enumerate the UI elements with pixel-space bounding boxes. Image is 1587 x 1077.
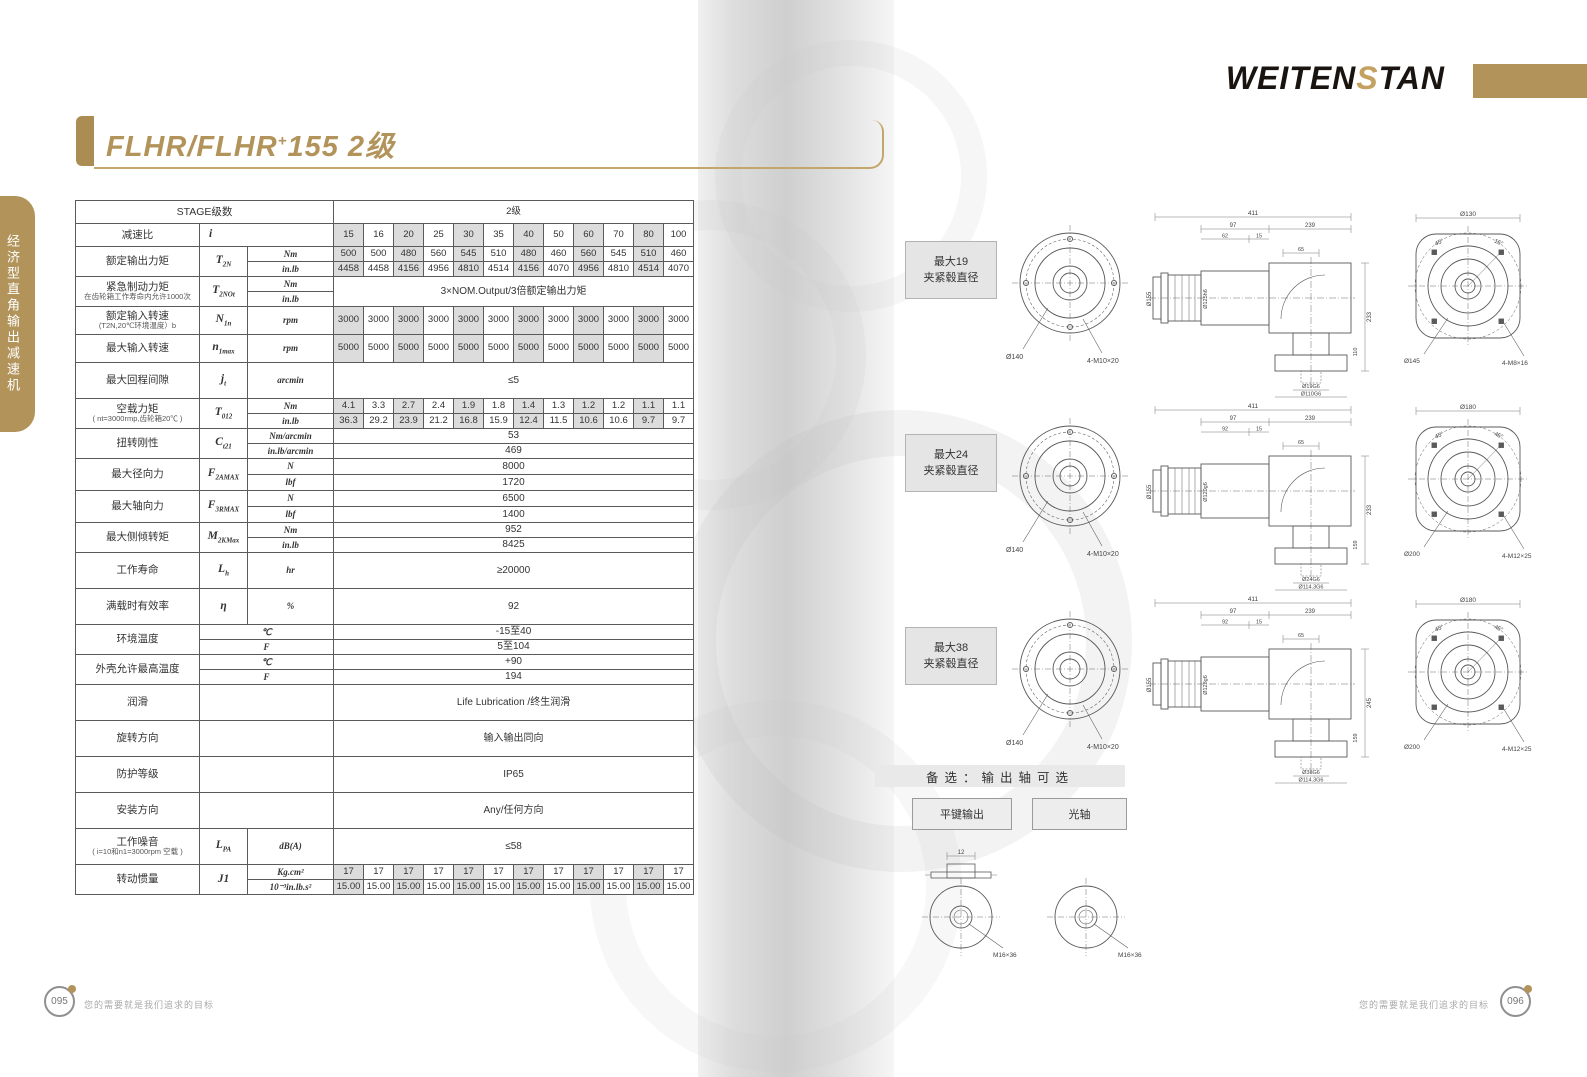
row-unit: Kg.cm²: [248, 865, 334, 880]
svg-text:Ø145: Ø145: [1404, 358, 1420, 365]
svg-text:45°: 45°: [1493, 431, 1504, 441]
row-unit: N: [248, 459, 334, 475]
row-unit: in.lb: [248, 292, 334, 307]
svg-text:Ø19G6: Ø19G6: [1302, 384, 1320, 390]
drawing-row: 最大19夹紧毂直径 Ø140 4-M10×20 411 97 239 62 15…: [900, 205, 1570, 395]
value-span: 6500: [334, 491, 694, 507]
value-cell: 4810: [454, 262, 484, 277]
svg-text:4-M12×25: 4-M12×25: [1502, 746, 1532, 753]
value-cell: 3000: [634, 307, 664, 335]
value-cell: 1.1: [664, 399, 694, 414]
row-unit: in.lb: [248, 262, 334, 277]
value-cell: 3000: [484, 307, 514, 335]
svg-text:4-M12×25: 4-M12×25: [1502, 553, 1532, 560]
side-view-drawing: 411 97 239 62 15 65 Ø155 Ø125h6 233 110 …: [1143, 205, 1383, 405]
value-cell: 545: [604, 247, 634, 262]
ratio-value: 20: [394, 224, 424, 247]
value-cell: 5000: [514, 335, 544, 363]
value-cell: 9.7: [634, 414, 664, 429]
value-cell: 15.00: [424, 880, 454, 895]
flange-view-drawing: Ø180 45° 45° Ø200 4-M12×25: [1388, 401, 1548, 584]
value-cell: 4156: [394, 262, 424, 277]
value-cell: 5000: [574, 335, 604, 363]
row-symbol: F2AMAX: [200, 459, 248, 491]
row-unit: hr: [248, 553, 334, 589]
svg-text:Ø114.3G6: Ø114.3G6: [1299, 778, 1324, 784]
value-cell: 9.7: [664, 414, 694, 429]
row-label: 转动惯量: [76, 865, 200, 895]
value-cell: 21.2: [424, 414, 454, 429]
svg-text:159: 159: [1353, 540, 1359, 549]
row-label: 满载时有效率: [76, 589, 200, 625]
flange-view-drawing: Ø180 45° 45° Ø200 4-M12×25: [1388, 594, 1548, 777]
value-span: -15至40: [334, 625, 694, 640]
option-keyed-output: 平键输出: [912, 798, 1012, 830]
clamp-spec-box: 最大38夹紧毂直径: [905, 627, 997, 685]
value-cell: 1.2: [574, 399, 604, 414]
svg-text:Ø200: Ø200: [1404, 744, 1420, 751]
value-cell: 480: [514, 247, 544, 262]
value-cell: 17: [634, 865, 664, 880]
ratio-value: 16: [364, 224, 394, 247]
svg-text:Ø180: Ø180: [1460, 404, 1476, 411]
value-span: ≥20000: [334, 553, 694, 589]
value-cell: 560: [574, 247, 604, 262]
value-cell: 15.00: [394, 880, 424, 895]
value-cell: 5000: [364, 335, 394, 363]
svg-text:15: 15: [1256, 234, 1262, 240]
row-symbol: T012: [200, 399, 248, 429]
svg-text:Ø180: Ø180: [1460, 597, 1476, 604]
row-symbol: Ct21: [200, 429, 248, 459]
footer-slogan-left: 您的需要就是我们追求的目标: [84, 998, 214, 1011]
front-view-drawing: Ø140 4-M10×20: [1003, 406, 1138, 581]
svg-text:M16×36: M16×36: [993, 952, 1017, 959]
row-label: 额定输入转速(T2N,20℃环境温度）b: [76, 307, 200, 335]
stage-value: 2级: [334, 201, 694, 224]
value-cell: 17: [454, 865, 484, 880]
row-unit: 10⁻³in.lb.s²: [248, 880, 334, 895]
svg-text:12: 12: [958, 850, 965, 856]
svg-text:65: 65: [1298, 633, 1304, 639]
svg-text:92: 92: [1222, 427, 1228, 433]
value-span: 1400: [334, 507, 694, 523]
value-cell: 17: [364, 865, 394, 880]
row-label: 最大轴向力: [76, 491, 200, 523]
svg-text:Ø125h6: Ø125h6: [1203, 289, 1209, 309]
svg-text:65: 65: [1298, 440, 1304, 446]
row-unit: Nm/arcmin: [248, 429, 334, 444]
drawing-row: 最大38夹紧毂直径 Ø140 4-M10×20 411 97 239 92 15…: [900, 591, 1570, 781]
value-cell: 17: [334, 865, 364, 880]
value-cell: 15.9: [484, 414, 514, 429]
value-cell: 1.2: [604, 399, 634, 414]
value-span: 92: [334, 589, 694, 625]
value-span: 1720: [334, 475, 694, 491]
row-label: 扭转刚性: [76, 429, 200, 459]
value-cell: 17: [604, 865, 634, 880]
value-cell: 500: [334, 247, 364, 262]
ratio-value: 50: [544, 224, 574, 247]
svg-text:15°: 15°: [1493, 238, 1504, 248]
value-cell: 15.00: [574, 880, 604, 895]
value-cell: 4514: [634, 262, 664, 277]
svg-text:4-M10×20: 4-M10×20: [1087, 551, 1119, 558]
row-symbol: jt: [200, 363, 248, 399]
value-cell: 11.5: [544, 414, 574, 429]
value-span: 952: [334, 523, 694, 538]
option-plain-shaft: 光轴: [1032, 798, 1127, 830]
side-view-drawing: 411 97 239 92 15 65 Ø155 Ø120g6 233 159 …: [1143, 398, 1383, 598]
value-span: 469: [334, 444, 694, 459]
row-label: 空载力矩( nt=3000rmp,齿轮箱20℃ ): [76, 399, 200, 429]
value-cell: 5000: [424, 335, 454, 363]
value-span: 3×NOM.Output/3倍额定输出力矩: [334, 277, 694, 307]
value-cell: 17: [394, 865, 424, 880]
svg-text:411: 411: [1248, 210, 1259, 217]
value-cell: 4070: [664, 262, 694, 277]
svg-text:15: 15: [1256, 427, 1262, 433]
row-symbol: N1n: [200, 307, 248, 335]
svg-text:97: 97: [1230, 609, 1237, 615]
row-unit: [200, 721, 334, 757]
row-label: 环境温度: [76, 625, 200, 655]
value-span: ≤5: [334, 363, 694, 399]
ratio-value: 80: [634, 224, 664, 247]
value-cell: 5000: [664, 335, 694, 363]
value-cell: 4458: [364, 262, 394, 277]
row-unit: lbf: [248, 475, 334, 491]
row-label: 工作噪音( i=10和n1=3000rpm 空载 ): [76, 829, 200, 865]
footer-slogan-right: 您的需要就是我们追求的目标: [1359, 998, 1489, 1011]
svg-text:4-M8×16: 4-M8×16: [1502, 360, 1528, 367]
row-unit: Nm: [248, 523, 334, 538]
row-unit: lbf: [248, 507, 334, 523]
value-cell: 23.9: [394, 414, 424, 429]
svg-text:45°: 45°: [1493, 624, 1504, 634]
ratio-value: 100: [664, 224, 694, 247]
value-cell: 3000: [334, 307, 364, 335]
value-cell: 4514: [484, 262, 514, 277]
row-label: 防护等级: [76, 757, 200, 793]
value-cell: 3000: [394, 307, 424, 335]
svg-text:Ø140: Ø140: [1006, 740, 1023, 747]
svg-text:233: 233: [1367, 311, 1373, 322]
value-cell: 5000: [484, 335, 514, 363]
value-span: 8000: [334, 459, 694, 475]
stage-header: STAGE级数: [76, 201, 334, 224]
options-header-bar: 备选：输出轴可选: [875, 765, 1125, 787]
svg-text:45°: 45°: [1434, 431, 1445, 441]
svg-text:65: 65: [1298, 247, 1304, 253]
value-cell: 3000: [514, 307, 544, 335]
row-unit: F: [200, 670, 334, 685]
value-cell: 4070: [544, 262, 574, 277]
value-cell: 17: [544, 865, 574, 880]
value-cell: 29.2: [364, 414, 394, 429]
value-cell: 3000: [664, 307, 694, 335]
row-unit: F: [200, 640, 334, 655]
row-unit: arcmin: [248, 363, 334, 399]
row-unit: Nm: [248, 399, 334, 414]
ratio-value: 15: [334, 224, 364, 247]
value-span: Life Lubrication /终生润滑: [334, 685, 694, 721]
plain-shaft-drawing: M16×36: [1020, 842, 1170, 975]
clamp-spec-box: 最大24夹紧毂直径: [905, 434, 997, 492]
svg-text:Ø128g6: Ø128g6: [1203, 675, 1209, 695]
svg-text:15: 15: [1256, 620, 1262, 626]
value-cell: 15.00: [364, 880, 394, 895]
svg-text:159: 159: [1353, 733, 1359, 742]
row-unit: Nm: [248, 247, 334, 262]
svg-text:97: 97: [1230, 223, 1237, 229]
svg-text:Ø38G6: Ø38G6: [1302, 770, 1320, 776]
spec-table: STAGE级数2级减速比i1516202530354050607080100额定…: [75, 200, 694, 895]
value-cell: 3000: [604, 307, 634, 335]
drawing-row: 最大24夹紧毂直径 Ø140 4-M10×20 411 97 239 92 15…: [900, 398, 1570, 588]
ratio-symbol: i: [200, 224, 334, 247]
value-cell: 1.4: [514, 399, 544, 414]
title-gold-tab: [76, 116, 94, 166]
svg-text:239: 239: [1305, 609, 1316, 615]
page-title: FLHR/FLHR+155 2级: [106, 123, 395, 165]
value-cell: 1.3: [544, 399, 574, 414]
value-cell: 10.6: [604, 414, 634, 429]
value-cell: 17: [664, 865, 694, 880]
value-cell: 3000: [424, 307, 454, 335]
value-cell: 500: [364, 247, 394, 262]
svg-text:4-M10×20: 4-M10×20: [1087, 744, 1119, 751]
ratio-value: 40: [514, 224, 544, 247]
row-label: 安装方向: [76, 793, 200, 829]
ratio-value: 70: [604, 224, 634, 247]
value-cell: 15.00: [454, 880, 484, 895]
svg-text:Ø140: Ø140: [1006, 547, 1023, 554]
svg-text:411: 411: [1248, 403, 1259, 410]
page-number-left: 095: [44, 986, 75, 1017]
ratio-value: 60: [574, 224, 604, 247]
value-cell: 480: [394, 247, 424, 262]
row-unit: N: [248, 491, 334, 507]
row-unit: ℃: [200, 655, 334, 670]
row-unit: in.lb: [248, 538, 334, 553]
value-cell: 1.8: [484, 399, 514, 414]
value-cell: 3000: [574, 307, 604, 335]
value-cell: 5000: [454, 335, 484, 363]
row-label: 最大回程间隙: [76, 363, 200, 399]
side-view-drawing: 411 97 239 92 15 65 Ø155 Ø128g6 245 159 …: [1143, 591, 1383, 791]
row-symbol: J1: [200, 865, 248, 895]
value-cell: 1.1: [634, 399, 664, 414]
row-label: 最大径向力: [76, 459, 200, 491]
value-cell: 15.00: [334, 880, 364, 895]
value-cell: 3000: [544, 307, 574, 335]
svg-text:Ø140: Ø140: [1006, 354, 1023, 361]
value-cell: 17: [424, 865, 454, 880]
svg-text:45°: 45°: [1434, 238, 1445, 248]
value-cell: 4458: [334, 262, 364, 277]
row-symbol: Lh: [200, 553, 248, 589]
value-cell: 15.00: [664, 880, 694, 895]
value-cell: 460: [544, 247, 574, 262]
row-label: 润滑: [76, 685, 200, 721]
value-cell: 4956: [424, 262, 454, 277]
value-cell: 3.3: [364, 399, 394, 414]
value-cell: 2.4: [424, 399, 454, 414]
value-cell: 5000: [604, 335, 634, 363]
value-cell: 15.00: [514, 880, 544, 895]
svg-text:Ø155: Ø155: [1147, 291, 1153, 306]
svg-text:239: 239: [1305, 416, 1316, 422]
row-unit: %: [248, 589, 334, 625]
row-unit: Nm: [248, 277, 334, 292]
svg-text:Ø110G6: Ø110G6: [1301, 392, 1321, 398]
row-label: 紧急制动力矩在齿轮箱工作寿命内允许1000次: [76, 277, 200, 307]
value-cell: 510: [634, 247, 664, 262]
value-cell: 5000: [334, 335, 364, 363]
row-unit: dB(A): [248, 829, 334, 865]
value-cell: 1.9: [454, 399, 484, 414]
category-side-tab-label: 经济型直角输出减速机: [3, 234, 22, 394]
row-symbol: M2KMax: [200, 523, 248, 553]
value-cell: 36.3: [334, 414, 364, 429]
ratio-label: 减速比: [76, 224, 200, 247]
row-unit: in.lb: [248, 414, 334, 429]
front-view-drawing: Ø140 4-M10×20: [1003, 213, 1138, 388]
svg-text:Ø120g6: Ø120g6: [1203, 482, 1209, 502]
value-cell: 10.6: [574, 414, 604, 429]
svg-text:411: 411: [1248, 596, 1259, 603]
row-unit: [200, 757, 334, 793]
value-cell: 17: [514, 865, 544, 880]
row-label: 额定输出力矩: [76, 247, 200, 277]
value-cell: 16.8: [454, 414, 484, 429]
row-label: 旋转方向: [76, 721, 200, 757]
value-span: Any/任何方向: [334, 793, 694, 829]
svg-text:110: 110: [1353, 348, 1359, 357]
value-cell: 4156: [514, 262, 544, 277]
value-cell: 2.7: [394, 399, 424, 414]
svg-text:Ø114.3G6: Ø114.3G6: [1299, 585, 1324, 591]
ratio-value: 30: [454, 224, 484, 247]
row-symbol: LPA: [200, 829, 248, 865]
svg-text:Ø130: Ø130: [1460, 211, 1476, 218]
ratio-value: 25: [424, 224, 454, 247]
row-label: 最大输入转速: [76, 335, 200, 363]
value-cell: 3000: [364, 307, 394, 335]
value-cell: 460: [664, 247, 694, 262]
svg-text:239: 239: [1305, 223, 1316, 229]
row-label: 工作寿命: [76, 553, 200, 589]
value-cell: 560: [424, 247, 454, 262]
ratio-value: 35: [484, 224, 514, 247]
svg-text:45°: 45°: [1434, 624, 1445, 634]
row-symbol: η: [200, 589, 248, 625]
row-unit: rpm: [248, 307, 334, 335]
row-unit: rpm: [248, 335, 334, 363]
svg-text:92: 92: [1222, 620, 1228, 626]
row-unit: [200, 793, 334, 829]
value-cell: 15.00: [484, 880, 514, 895]
value-span: ≤58: [334, 829, 694, 865]
svg-text:Ø155: Ø155: [1147, 677, 1153, 692]
value-span: 5至104: [334, 640, 694, 655]
value-cell: 17: [484, 865, 514, 880]
value-cell: 510: [484, 247, 514, 262]
svg-text:245: 245: [1367, 697, 1373, 708]
value-cell: 5000: [394, 335, 424, 363]
value-cell: 15.00: [604, 880, 634, 895]
value-cell: 15.00: [634, 880, 664, 895]
category-side-tab: 经济型直角输出减速机: [0, 196, 35, 432]
row-unit: [200, 685, 334, 721]
row-symbol: F3RMAX: [200, 491, 248, 523]
value-span: 53: [334, 429, 694, 444]
svg-text:4-M10×20: 4-M10×20: [1087, 358, 1119, 365]
row-label: 外壳允许最高温度: [76, 655, 200, 685]
svg-text:Ø24G6: Ø24G6: [1302, 577, 1320, 583]
page-number-right: 096: [1500, 986, 1531, 1017]
value-cell: 4.1: [334, 399, 364, 414]
row-symbol: n1max: [200, 335, 248, 363]
svg-text:Ø155: Ø155: [1147, 484, 1153, 499]
value-cell: 3000: [454, 307, 484, 335]
row-unit: in.lb/arcmin: [248, 444, 334, 459]
value-cell: 4956: [574, 262, 604, 277]
value-span: IP65: [334, 757, 694, 793]
value-cell: 545: [454, 247, 484, 262]
row-unit: ℃: [200, 625, 334, 640]
clamp-spec-box: 最大19夹紧毂直径: [905, 241, 997, 299]
svg-text:62: 62: [1222, 234, 1228, 240]
catalog-page: WEITENSTAN FLHR/FLHR+155 2级 经济型直角输出减速机 S…: [0, 0, 1587, 1077]
svg-text:M16×36: M16×36: [1118, 952, 1142, 959]
front-view-drawing: Ø140 4-M10×20: [1003, 599, 1138, 774]
value-span: 8425: [334, 538, 694, 553]
value-span: 194: [334, 670, 694, 685]
row-label: 最大侧倾转矩: [76, 523, 200, 553]
svg-text:233: 233: [1367, 504, 1373, 515]
value-cell: 15.00: [544, 880, 574, 895]
options-header-label: 备选：输出轴可选: [926, 767, 1074, 786]
row-symbol: T2N: [200, 247, 248, 277]
value-cell: 5000: [544, 335, 574, 363]
value-span: 输入输出同向: [334, 721, 694, 757]
value-span: +90: [334, 655, 694, 670]
value-cell: 12.4: [514, 414, 544, 429]
svg-text:Ø200: Ø200: [1404, 551, 1420, 558]
row-symbol: T2NOt: [200, 277, 248, 307]
value-cell: 5000: [634, 335, 664, 363]
svg-text:97: 97: [1230, 416, 1237, 422]
value-cell: 17: [574, 865, 604, 880]
flange-view-drawing: Ø130 45° 15° Ø145 4-M8×16: [1388, 208, 1548, 391]
value-cell: 4810: [604, 262, 634, 277]
